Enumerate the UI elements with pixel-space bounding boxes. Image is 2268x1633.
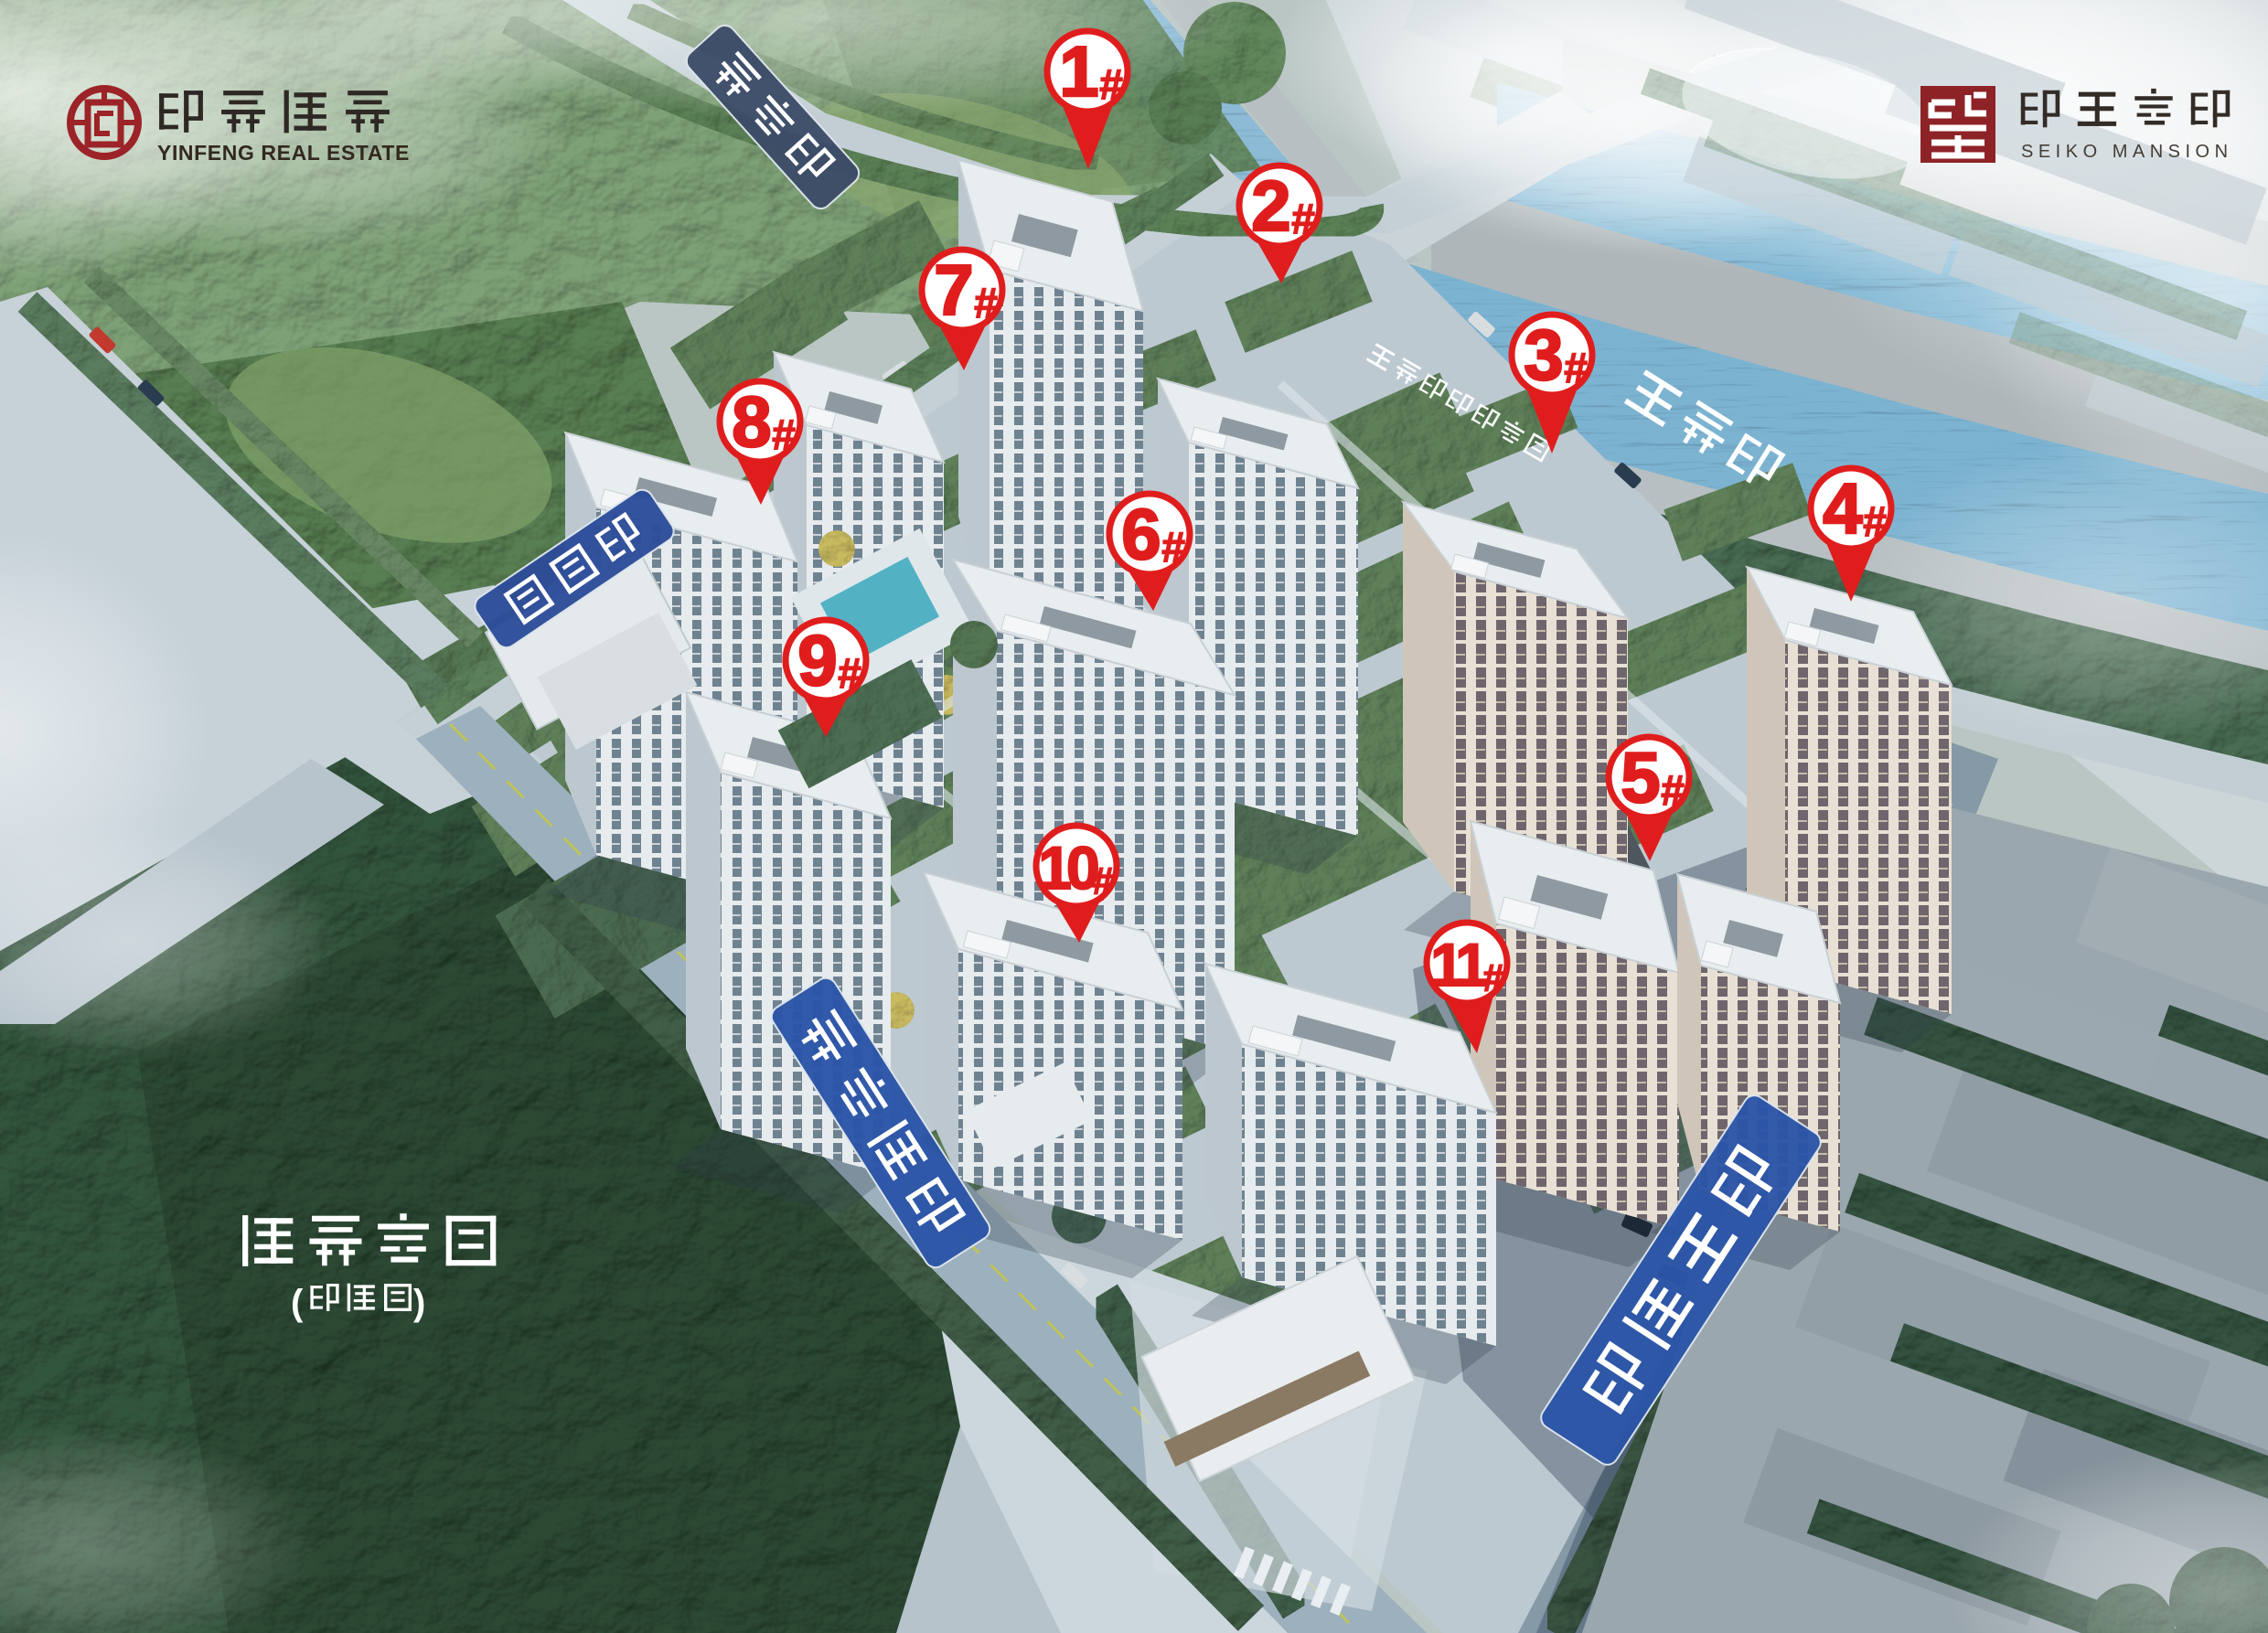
svg-text:SEIKO MANSION: SEIKO MANSION	[2021, 142, 2233, 162]
svg-text:3: 3	[1524, 315, 1563, 395]
svg-text:4: 4	[1823, 468, 1862, 549]
svg-text:#: #	[1482, 956, 1503, 999]
svg-text:7: 7	[934, 250, 973, 330]
svg-text:9: 9	[797, 620, 837, 700]
svg-text:11: 11	[1430, 931, 1487, 998]
svg-text:#: #	[974, 279, 998, 326]
svg-text:#: #	[1661, 766, 1685, 814]
svg-text:#: #	[1564, 344, 1588, 391]
svg-text:#: #	[1161, 523, 1185, 571]
svg-text:2: 2	[1251, 165, 1290, 246]
svg-text:YINFENG REAL ESTATE: YINFENG REAL ESTATE	[157, 141, 410, 165]
svg-text:(: (	[291, 1283, 304, 1323]
svg-text:#: #	[1863, 497, 1887, 545]
svg-text:5: 5	[1621, 737, 1660, 817]
svg-text:#: #	[1092, 859, 1113, 902]
svg-text:#: #	[772, 411, 796, 458]
svg-text:#: #	[838, 649, 861, 697]
svg-text:6: 6	[1121, 494, 1161, 574]
svg-text:#: #	[1099, 60, 1123, 108]
svg-text:8: 8	[732, 381, 771, 462]
svg-text:10: 10	[1038, 834, 1097, 902]
svg-text:1: 1	[1059, 31, 1098, 112]
svg-text:#: #	[1291, 195, 1315, 242]
svg-text:): )	[413, 1283, 425, 1323]
